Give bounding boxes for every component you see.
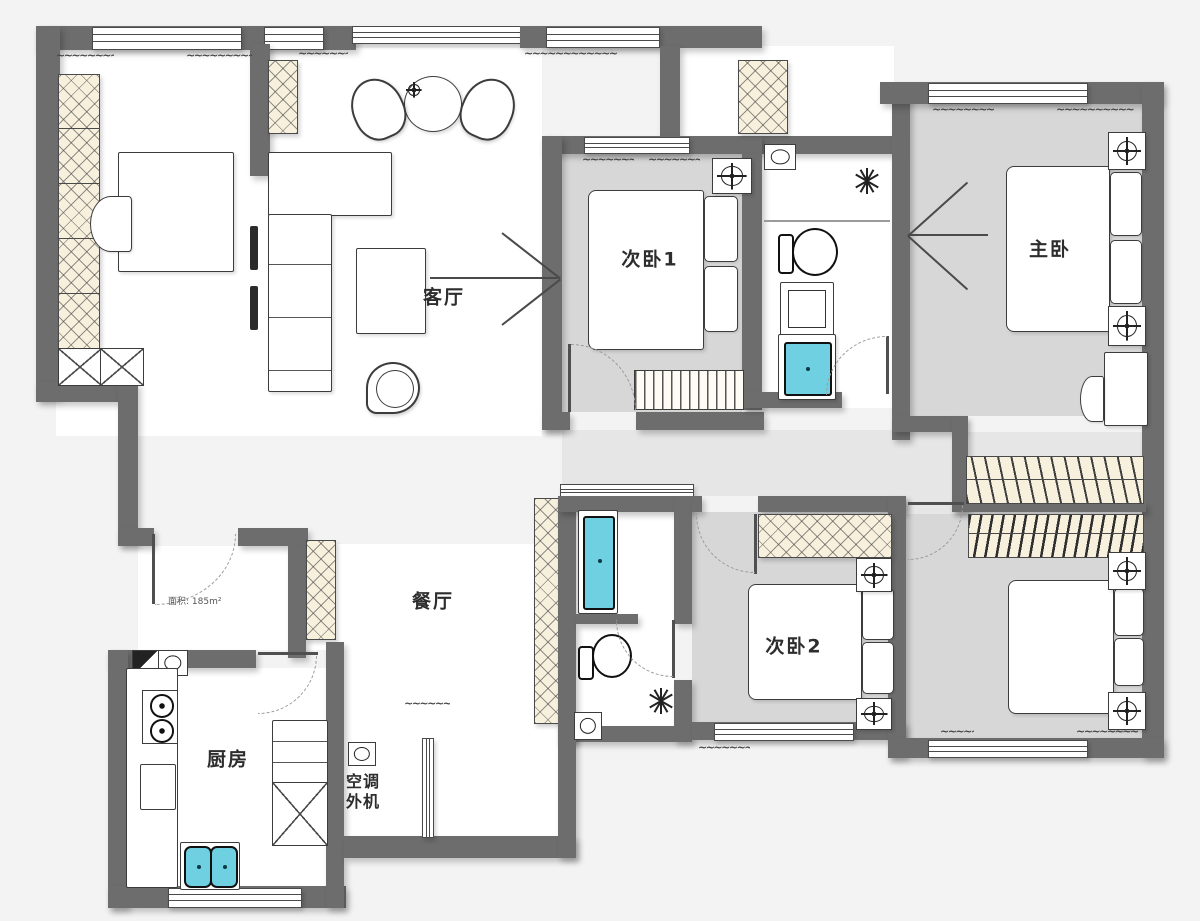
desk-chair (1080, 376, 1104, 422)
wall (542, 412, 570, 430)
wardrobe-hatch (306, 540, 336, 640)
kitchen-label: 厨房 (207, 745, 249, 772)
nightstand-lamp (856, 698, 892, 730)
nightstand-lamp (1108, 132, 1146, 170)
dining-room-label: 餐厅 (412, 587, 454, 614)
living-room-label: 客厅 (423, 283, 465, 310)
cabinet (100, 348, 144, 386)
nightstand-lamp (1108, 552, 1146, 590)
cabinet (58, 348, 102, 386)
sink-bowl (210, 846, 238, 888)
pillow (862, 642, 894, 694)
drain-point (348, 742, 376, 766)
pillow (1114, 638, 1144, 686)
wall (250, 44, 270, 176)
curtain-mark: ~~~~~~~~~~~~ (940, 728, 974, 736)
pillow (862, 588, 894, 640)
curtain-mark: ~~~~~~~~~~~~ (1056, 106, 1134, 114)
wall (238, 528, 308, 546)
curtain-mark: ~~~~~~~~~~~~ (648, 156, 700, 164)
ac-unit-label-line2: 外机 (346, 792, 380, 812)
area-note: 面积: 185m² (168, 594, 221, 607)
window (546, 27, 660, 48)
desk (1104, 352, 1148, 426)
window (92, 27, 242, 50)
toilet-bowl (792, 228, 838, 276)
sofa-top-seat (268, 152, 392, 216)
coffee-table (356, 248, 426, 334)
wall (558, 496, 576, 742)
wall (108, 650, 128, 908)
leader-line (430, 277, 558, 279)
wall (288, 546, 306, 658)
pillow (704, 266, 738, 332)
window (714, 723, 854, 741)
desk-chair (90, 196, 132, 252)
wall (118, 528, 154, 546)
wardrobe-hatch (268, 60, 298, 134)
window (584, 137, 690, 154)
wall (660, 46, 680, 140)
leader-line (908, 234, 988, 236)
fridge (272, 720, 328, 784)
exhaust-fan-icon (854, 168, 880, 194)
window (168, 888, 302, 908)
sink-bowl (184, 846, 212, 888)
wall (692, 496, 702, 512)
wall (326, 642, 344, 908)
curtain-mark: ~~~~~~~~~~~~ (298, 50, 348, 58)
floor-plan: ~~~~~~~~~~~~ ~~~~~~~~~~~~ ~~~~~~~~~~~~ ~… (0, 0, 1200, 921)
washing-machine (780, 282, 834, 336)
stove (142, 690, 178, 744)
curtain-mark: ~~~~~~~~~~~~ (1076, 728, 1138, 736)
wardrobe-hatch (738, 60, 788, 134)
curtain-mark: ~~~~~~~~~~~~ (56, 52, 114, 60)
curtain-mark: ~~~~~~~~~~~~ (698, 744, 750, 752)
nightstand-lamp (712, 158, 752, 194)
sofa-column (268, 214, 332, 392)
pillow (1110, 172, 1142, 236)
pillow (1114, 588, 1144, 636)
curtain-mark: ~~~~~~~~~~~~ (186, 52, 252, 60)
pillow (704, 196, 738, 262)
curtain-mark: ~~~~~~~~~~~~ (524, 50, 620, 58)
cabinet (140, 764, 176, 810)
wardrobe-hatch (758, 514, 892, 558)
nightstand-lamp (856, 558, 892, 592)
bed (1008, 580, 1114, 714)
nightstand-lamp (1108, 692, 1146, 730)
bedroom1-label: 次卧1 (621, 245, 678, 272)
wall (674, 496, 692, 624)
table-lamp-icon (404, 80, 424, 100)
tv-speaker (250, 226, 258, 270)
water-heater (764, 144, 796, 170)
desk (118, 152, 234, 272)
vanity-sink (583, 516, 615, 610)
wall (36, 26, 60, 398)
vanity-sink (784, 342, 832, 396)
wall (636, 412, 764, 430)
master-bedroom-label: 主卧 (1029, 235, 1071, 262)
lounge-chair (366, 362, 420, 414)
closet-shelf-row (966, 456, 1144, 504)
bedroom2-label: 次卧2 (765, 632, 822, 659)
window (352, 26, 524, 44)
curtain-mark: ~~~~~~~~~~~~ (932, 106, 994, 114)
nightstand-lamp (1108, 306, 1146, 346)
exhaust-fan-icon (648, 688, 674, 714)
cabinet (272, 782, 328, 846)
window (264, 27, 324, 50)
ac-unit-label-line1: 空调 (346, 772, 380, 792)
ac-unit-label: 空调 外机 (346, 772, 380, 812)
wall (118, 382, 138, 544)
window (422, 738, 434, 838)
tv-speaker (250, 286, 258, 330)
curtain-mark: ~~~~~~~~~~~~ (582, 156, 634, 164)
floor-drain (574, 712, 602, 740)
shower-divider (764, 220, 890, 222)
bench (634, 370, 744, 410)
wall (892, 95, 910, 440)
pillow (1110, 240, 1142, 304)
curtain-mark: ~~~~~~~~~~~~ (404, 700, 450, 708)
wall (758, 496, 906, 512)
window (928, 83, 1088, 104)
wall (344, 836, 576, 858)
window (928, 740, 1088, 758)
